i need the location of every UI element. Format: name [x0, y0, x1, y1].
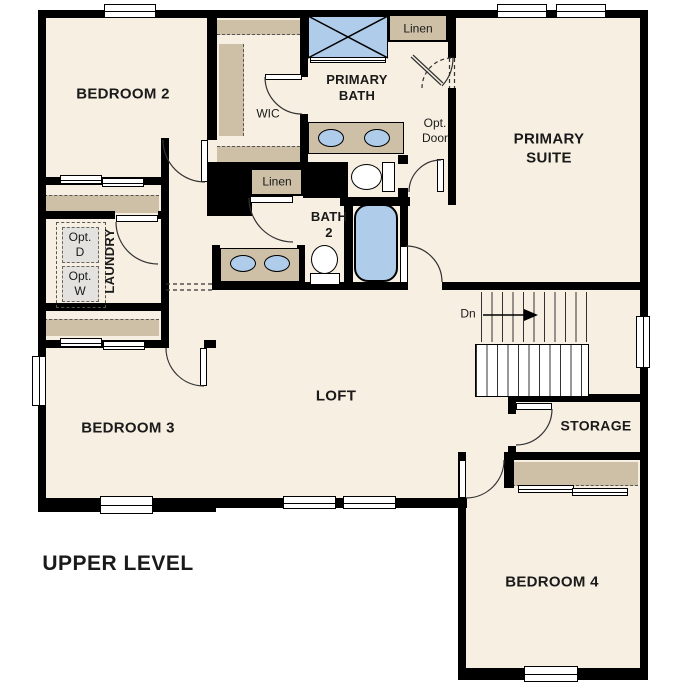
label-stairs-down: Dn — [460, 307, 475, 322]
wall — [504, 452, 648, 460]
wall — [161, 138, 169, 348]
wic-shelf-bottom — [217, 146, 300, 163]
shower — [308, 16, 388, 58]
wall — [442, 282, 648, 290]
bedroom4-closet-shelf — [512, 462, 638, 486]
room-label-loft: LOFT — [316, 388, 356, 407]
sink — [364, 129, 390, 147]
wall — [158, 211, 169, 219]
wall — [212, 245, 220, 285]
wall — [508, 402, 516, 414]
bypass-door — [60, 175, 102, 184]
window — [556, 4, 606, 18]
label-opt-dryer: Opt. D — [69, 230, 92, 260]
toilet — [350, 160, 396, 194]
room-label-primary-suite: PRIMARY SUITE — [514, 130, 585, 168]
wall — [398, 155, 408, 164]
toilet-tank — [310, 273, 340, 285]
window — [636, 316, 650, 368]
label-linen-mid: Linen — [262, 175, 291, 190]
wall — [207, 10, 217, 140]
shower-glass-door — [310, 57, 386, 63]
wall — [504, 460, 514, 488]
label-linen-top: Linen — [403, 22, 432, 37]
plan-title: UPPER LEVEL — [42, 551, 193, 577]
wall — [303, 170, 348, 198]
bypass-door — [60, 338, 102, 347]
stairs-lower-run — [475, 344, 589, 397]
label-opt-washer: Opt. W — [69, 269, 92, 299]
bypass-door — [103, 341, 145, 350]
sliding-door — [572, 488, 628, 496]
room-label-wic: WIC — [256, 107, 279, 122]
window — [343, 496, 396, 509]
floor-plan: BEDROOM 2 WIC PRIMARY BATH Linen Opt. Do… — [0, 0, 687, 687]
wall — [398, 188, 408, 201]
door-leaf — [201, 140, 208, 182]
toilet-tank — [382, 162, 395, 192]
bypass-door — [102, 178, 144, 187]
wall — [300, 10, 308, 77]
wic-shelf-left — [219, 44, 244, 136]
room-label-primary-bath: PRIMARY BATH — [326, 72, 388, 105]
door-leaf — [116, 215, 158, 222]
sink — [318, 129, 344, 147]
window — [524, 666, 578, 682]
window — [32, 356, 46, 406]
room-label-bedroom-2: BEDROOM 2 — [76, 86, 170, 105]
wall — [38, 406, 46, 500]
room-label-storage: STORAGE — [560, 417, 631, 435]
window — [100, 496, 153, 514]
window — [283, 496, 336, 509]
toilet-bowl — [311, 245, 338, 274]
wall — [207, 170, 252, 216]
sink — [264, 255, 290, 272]
wall — [448, 14, 456, 58]
bathtub — [354, 204, 398, 282]
door-leaf — [200, 348, 207, 386]
wall — [448, 88, 456, 205]
sink — [230, 255, 256, 272]
label-opt-door: Opt. Door — [422, 116, 448, 146]
room-label-laundry: LAUNDRY — [102, 228, 118, 293]
wic-shelf-top — [217, 20, 300, 35]
door-leaf — [459, 460, 466, 498]
toilet — [309, 245, 341, 286]
wall — [207, 498, 467, 508]
wall — [204, 340, 216, 348]
wall — [508, 446, 516, 456]
stairs-upper-run — [481, 292, 587, 342]
wall — [38, 211, 115, 219]
toilet-bowl — [351, 164, 382, 190]
door-leaf — [437, 159, 444, 192]
sliding-door — [518, 485, 574, 493]
bedroom3-closet-shelf — [44, 319, 159, 336]
wall — [640, 10, 648, 316]
window — [104, 4, 156, 18]
door-leaf — [265, 74, 302, 80]
door-leaf — [516, 403, 552, 410]
window — [497, 4, 547, 18]
door-leaf — [400, 246, 408, 283]
room-label-bath-2: BATH 2 — [311, 209, 347, 242]
door-leaf — [250, 196, 293, 203]
room-label-bedroom-4: BEDROOM 4 — [505, 574, 599, 593]
room-label-bedroom-3: BEDROOM 3 — [81, 420, 175, 439]
wall — [640, 368, 648, 680]
